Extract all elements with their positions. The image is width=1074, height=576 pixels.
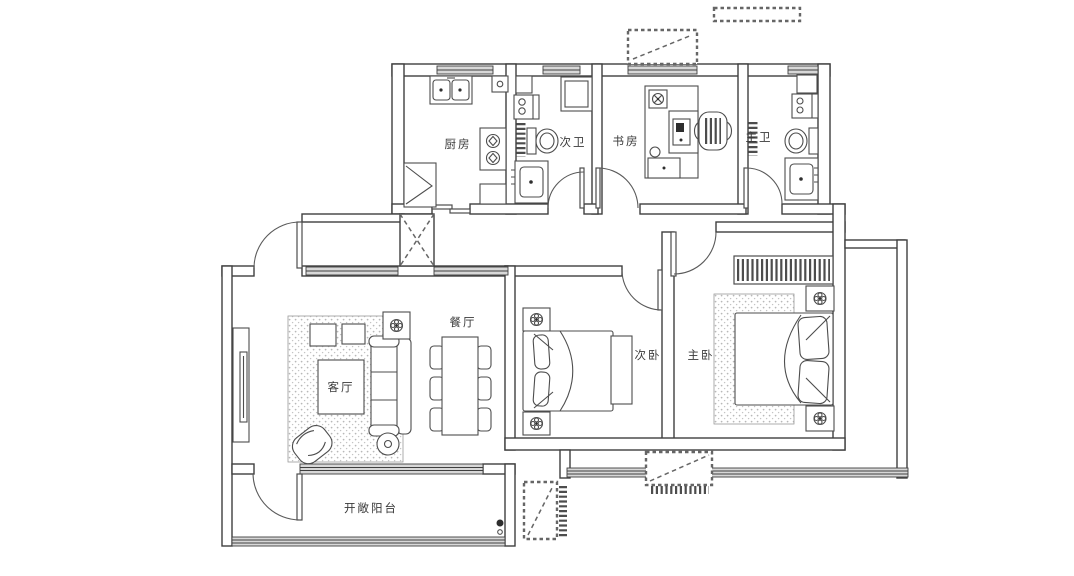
bed2-nightstand-top	[523, 308, 550, 331]
sofa	[369, 336, 411, 436]
room-label-dining: 餐厅	[450, 315, 477, 329]
floorplan-drawing: 厨房 次卫 书房 主卫 餐厅 客厅 次卧 主卧 开敞阳台	[0, 0, 1074, 576]
balcony-items	[497, 520, 504, 535]
bath2-cabinet	[516, 76, 532, 93]
bed1-nightstand-bottom	[806, 406, 834, 431]
bedroom2-furniture	[523, 308, 632, 435]
bath2-heater	[514, 95, 539, 119]
bath1-toilet	[785, 128, 818, 154]
study-furniture	[645, 86, 732, 178]
room-label-master-bedroom: 主卧	[688, 349, 715, 362]
dining-table	[442, 337, 478, 435]
bed1-nightstand-top	[806, 286, 834, 311]
cushion-2	[342, 324, 365, 344]
bedroom2-door	[622, 270, 662, 310]
side-table-plant	[383, 312, 410, 339]
shower-box	[561, 77, 592, 111]
bed2	[523, 331, 613, 411]
round-side-table	[377, 433, 399, 455]
kitchen-corner-box	[492, 76, 508, 92]
master-bedroom-door	[671, 232, 716, 276]
dining-chair	[477, 377, 491, 400]
room-label-secondary-bedroom: 次卧	[635, 348, 662, 362]
bath1-door	[744, 168, 782, 208]
bath1-washer	[792, 94, 818, 118]
bed2-bench	[611, 336, 632, 404]
kitchen-sliding-door	[432, 205, 470, 213]
bath2-toilet	[527, 128, 558, 154]
room-label-balcony: 开敞阳台	[344, 501, 398, 515]
bath1-vanity	[785, 158, 818, 200]
dining-chair	[477, 346, 491, 369]
kitchen-counter-end	[480, 184, 506, 204]
wardrobe	[734, 256, 833, 284]
office-chair	[695, 112, 732, 150]
kitchen-sink	[430, 76, 472, 104]
fridge	[404, 163, 436, 207]
balcony-door	[253, 474, 302, 520]
room-label-master-bath: 主卫	[746, 131, 773, 144]
cushion-1	[310, 324, 336, 346]
tv-cabinet	[233, 328, 249, 442]
bedroom1-furniture	[714, 256, 834, 431]
study-plant	[649, 90, 667, 108]
floorplan-page: 厨房 次卫 书房 主卫 餐厅 客厅 次卧 主卧 开敞阳台	[0, 0, 1074, 576]
entry-door	[254, 222, 302, 268]
ac-platform-balcony	[524, 482, 563, 539]
bath1-heater	[797, 75, 817, 93]
ac-platform-bedrooms	[646, 452, 712, 490]
stove	[480, 128, 506, 170]
dining-chair	[477, 408, 491, 431]
bath2-vanity	[511, 161, 548, 203]
bed1	[735, 313, 833, 405]
ac-platform-top-right	[714, 8, 800, 21]
study-cabinet	[648, 158, 680, 178]
room-label-kitchen: 厨房	[445, 138, 472, 151]
ac-platform-top	[628, 30, 697, 64]
dining-furniture	[430, 337, 491, 435]
room-label-living: 客厅	[328, 380, 355, 394]
duct-shaft	[400, 214, 434, 266]
room-label-study: 书房	[613, 135, 640, 148]
bed2-nightstand-bottom	[523, 412, 550, 435]
room-label-secondary-bath: 次卫	[560, 135, 587, 149]
floor-drain	[497, 520, 504, 527]
living-furniture	[233, 312, 411, 468]
bath2-door	[548, 168, 584, 208]
